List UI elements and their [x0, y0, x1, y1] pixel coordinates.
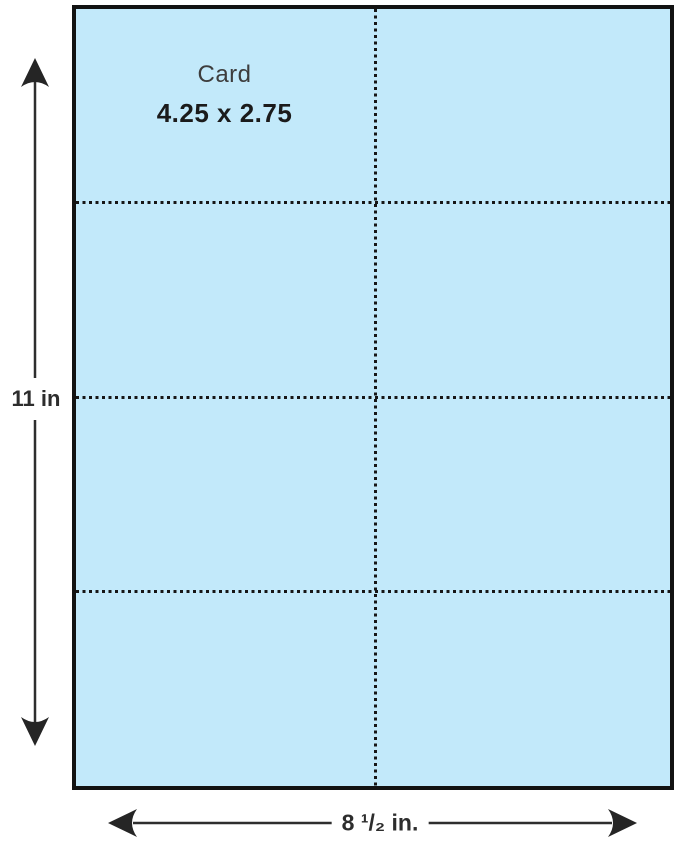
horizontal-cut-line-2: [76, 396, 670, 399]
width-label: 8 ¹/₂ in.: [332, 808, 429, 839]
card-sheet-template-diagram: Card 4.25 x 2.75 11 in 8 ¹/₂ in.: [0, 0, 679, 841]
card-size-text: 4.25 x 2.75: [76, 98, 373, 129]
horizontal-cut-line-3: [76, 590, 670, 593]
arrowhead-left-icon: [108, 809, 137, 837]
horizontal-cut-line-1: [76, 201, 670, 204]
width-dimension: 8 ¹/₂ in.: [100, 802, 645, 841]
card-name-text: Card: [76, 61, 373, 89]
card-sheet: Card 4.25 x 2.75: [72, 5, 674, 790]
arrowhead-right-icon: [608, 809, 637, 837]
height-label: 11 in: [11, 378, 62, 420]
height-dimension: 11 in: [8, 56, 64, 748]
card-label-block: Card 4.25 x 2.75: [76, 61, 373, 129]
